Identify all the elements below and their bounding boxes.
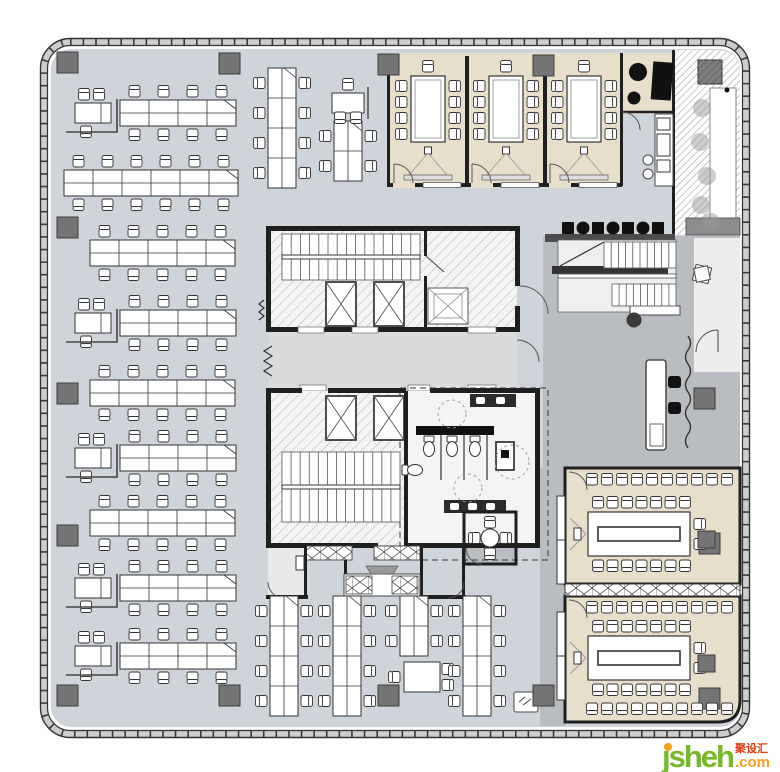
vestibule-floor xyxy=(694,238,740,372)
floor-plan-page: jsheh 聚设汇 .com xyxy=(0,0,780,772)
column xyxy=(378,685,399,706)
elevator xyxy=(374,282,404,326)
planting xyxy=(692,196,710,214)
elevator xyxy=(326,396,356,440)
column xyxy=(694,388,715,409)
reception-chair xyxy=(668,376,681,388)
watermark-brand: jsheh xyxy=(662,745,733,770)
planting xyxy=(698,167,716,185)
toilet xyxy=(402,465,423,476)
column xyxy=(57,685,78,706)
planting xyxy=(691,133,709,151)
column xyxy=(378,54,399,75)
stair xyxy=(282,234,420,280)
planting xyxy=(693,99,711,117)
planting xyxy=(702,213,720,231)
office-floor-plan xyxy=(0,0,780,772)
toilet xyxy=(424,436,435,457)
stair xyxy=(612,284,676,306)
column xyxy=(533,55,554,76)
reception-chair xyxy=(668,402,681,414)
service-lift xyxy=(428,288,468,324)
store-room-floor xyxy=(268,548,306,596)
watermark: jsheh 聚设汇 .com xyxy=(662,744,770,770)
elevator xyxy=(374,396,404,440)
stair xyxy=(282,452,400,522)
toilet xyxy=(470,436,481,457)
stair xyxy=(604,242,676,268)
watermark-dot-icon xyxy=(664,743,672,751)
column xyxy=(57,525,78,546)
column xyxy=(57,52,78,73)
column xyxy=(533,685,554,706)
watermark-tld: .com xyxy=(735,755,770,770)
elevator-lobby-floor xyxy=(269,331,517,389)
column xyxy=(57,217,78,238)
column xyxy=(57,383,78,404)
column xyxy=(219,685,240,706)
column xyxy=(219,53,240,74)
toilet xyxy=(447,436,458,457)
wall-art xyxy=(692,264,711,283)
elevator xyxy=(326,282,356,326)
